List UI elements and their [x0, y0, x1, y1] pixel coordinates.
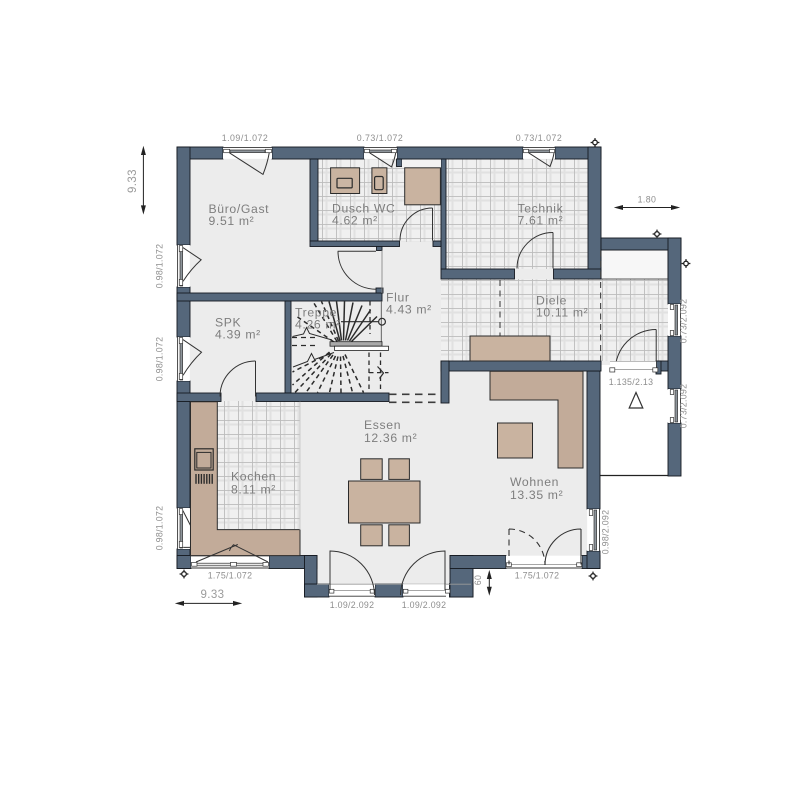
svg-text:13.35 m²: 13.35 m² — [510, 488, 563, 502]
svg-text:1.80: 1.80 — [638, 195, 657, 205]
svg-text:0.98/2.092: 0.98/2.092 — [601, 510, 611, 555]
svg-text:8.11 m²: 8.11 m² — [231, 483, 276, 497]
svg-text:1.09/2.092: 1.09/2.092 — [330, 600, 375, 610]
svg-text:Kochen: Kochen — [231, 470, 276, 484]
svg-text:7.61 m²: 7.61 m² — [518, 214, 564, 228]
svg-text:1.09/2.092: 1.09/2.092 — [402, 600, 447, 610]
svg-text:Wohnen: Wohnen — [510, 475, 559, 489]
svg-text:0.98/1.072: 0.98/1.072 — [155, 244, 165, 289]
svg-text:0.73/2.092: 0.73/2.092 — [679, 384, 689, 429]
svg-text:0.98/1.072: 0.98/1.072 — [155, 506, 165, 551]
svg-text:0.73/2.092: 0.73/2.092 — [679, 299, 689, 344]
svg-text:10.11 m²: 10.11 m² — [536, 306, 588, 320]
svg-text:4.39 m²: 4.39 m² — [215, 328, 261, 342]
svg-text:0.73/1.072: 0.73/1.072 — [357, 133, 404, 143]
svg-text:1.09/1.072: 1.09/1.072 — [222, 133, 269, 143]
svg-text:4.43 m²: 4.43 m² — [386, 303, 432, 317]
svg-text:1.135/2.13: 1.135/2.13 — [609, 377, 654, 387]
svg-text:9.33: 9.33 — [127, 169, 139, 193]
svg-text:0.73/1.072: 0.73/1.072 — [516, 133, 563, 143]
svg-text:Essen: Essen — [364, 418, 401, 432]
svg-text:4.62 m²: 4.62 m² — [332, 214, 378, 228]
svg-text:4.26 m²: 4.26 m² — [295, 318, 341, 332]
svg-text:1.75/1.072: 1.75/1.072 — [208, 571, 253, 581]
svg-text:60: 60 — [473, 575, 483, 586]
svg-text:9.33: 9.33 — [201, 589, 225, 601]
svg-text:0.98/1.072: 0.98/1.072 — [155, 337, 165, 382]
svg-text:12.36 m²: 12.36 m² — [364, 431, 417, 445]
svg-text:9.51 m²: 9.51 m² — [209, 214, 255, 228]
svg-text:1.75/1.072: 1.75/1.072 — [515, 571, 560, 581]
